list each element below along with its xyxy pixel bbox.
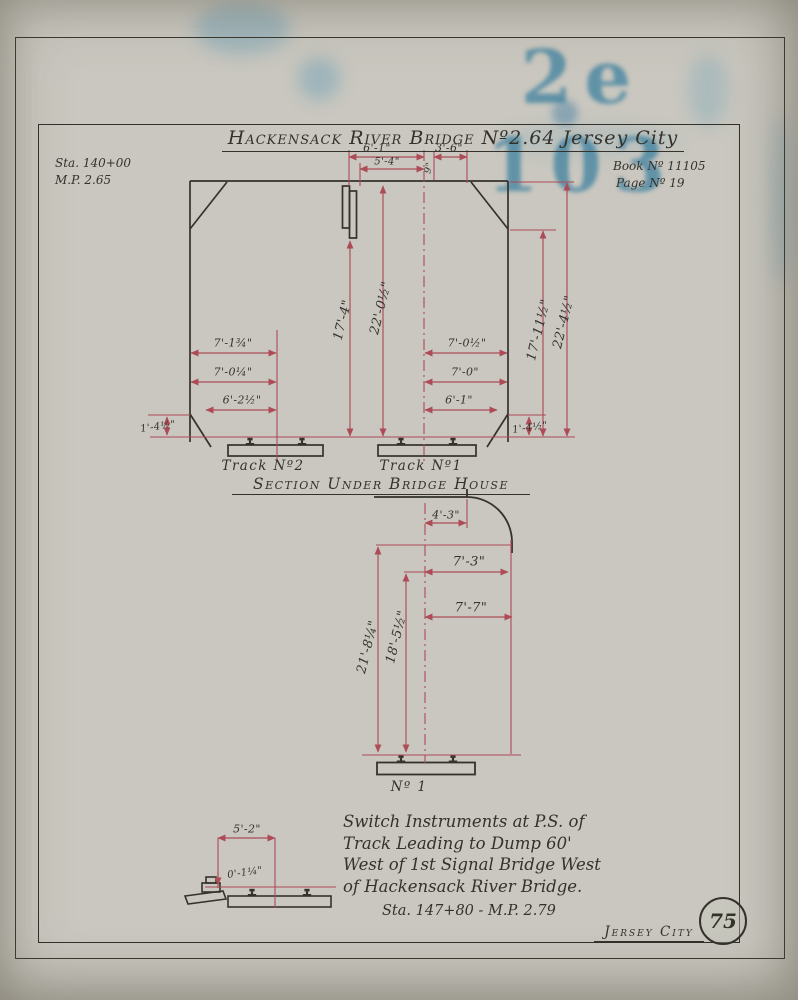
- hanging-signal-bracket: [343, 186, 350, 228]
- note-station: Sta. 147+80 - M.P. 2.79: [382, 903, 552, 919]
- dim-label-7-0: 7'-0": [451, 366, 479, 379]
- section-caption: Section Under Bridge House: [232, 475, 530, 495]
- note-line: Switch Instruments at P.S. of: [343, 811, 623, 833]
- dim-label-6-1-right: 6'-1": [445, 394, 473, 407]
- lower-track-label: Nº 1: [391, 779, 428, 795]
- book-note: Book Nº 11105 Page Nº 19: [613, 158, 705, 192]
- blueprint-sheet: 2e 103: [0, 0, 798, 1000]
- note-line: Track Leading to Dump 60': [343, 833, 623, 855]
- hanging-signal-bracket: [350, 191, 357, 238]
- station-note: Sta. 140+00 M.P. 2.65: [55, 155, 131, 189]
- switch-instruments-note: Switch Instruments at P.S. of Track Lead…: [343, 811, 623, 897]
- title-suffix: Jersey City: [563, 127, 679, 149]
- book-line: Book Nº 11105: [613, 158, 705, 175]
- dim-label-6-1-top: 6'-1": [363, 142, 391, 155]
- note-line: of Hackensack River Bridge.: [343, 876, 623, 898]
- inset-track-tie: [228, 896, 331, 907]
- track2-tie: [228, 445, 323, 456]
- dim-label-7-3: 7'-3": [453, 555, 486, 570]
- dim-label-7-1-three-quarter: 7'-1¾": [214, 337, 253, 350]
- dim-label-7-0-quarter: 7'-0¼": [214, 366, 253, 379]
- tie-plan: [185, 891, 226, 904]
- dim-label-3-6: 3'-6": [435, 142, 463, 155]
- instrument-box: [206, 877, 216, 883]
- dim-label-5-4: 5'-4": [374, 157, 399, 168]
- sheet-number: 75: [709, 909, 737, 933]
- inset-switch-drawing: [185, 877, 331, 907]
- dim-label-6-2-half: 6'-2½": [223, 394, 262, 407]
- note-line: West of 1st Signal Bridge West: [343, 854, 623, 876]
- footer-location: Jersey City: [594, 924, 704, 942]
- milepost-line: M.P. 2.65: [55, 172, 131, 189]
- track2-label: Track Nº2: [222, 458, 305, 474]
- dim-label-5-2: 5'-2": [233, 823, 261, 836]
- station-line: Sta. 140+00: [55, 155, 131, 172]
- dim-label-7-0-half: 7'-0½": [448, 337, 487, 350]
- lower-track-tie: [377, 763, 475, 775]
- page-line: Page Nº 19: [613, 175, 705, 192]
- track1-label: Track Nº1: [380, 458, 463, 474]
- track1-tie: [378, 445, 476, 456]
- sheet-number-badge: 75: [699, 897, 747, 945]
- dim-label-7-7: 7'-7": [455, 601, 488, 616]
- dim-label-4-3: 4'-3": [432, 509, 460, 522]
- title-main: Hackensack River Bridge Nº2.64: [228, 127, 556, 149]
